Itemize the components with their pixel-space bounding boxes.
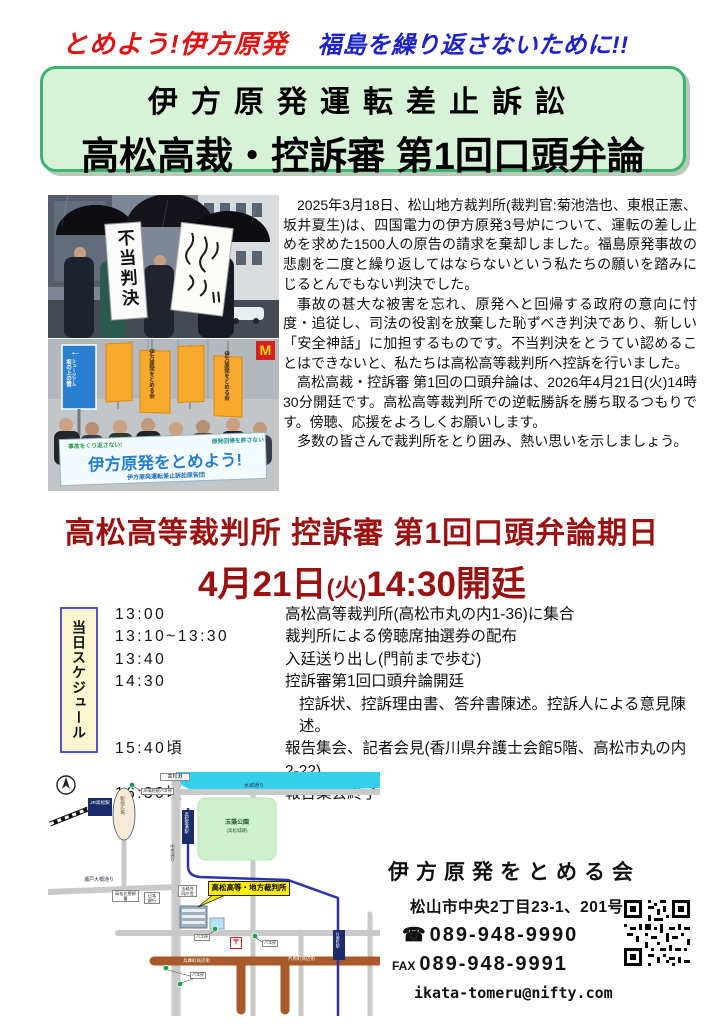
courthouse-building [180,906,207,928]
map-label-katahara-station: 片原町駅 [335,932,340,958]
map-label-seto-dori: 瀬戸大橋通り [84,877,114,883]
body-paragraph-2: 事故の甚大な被害を忘れ、原発へと回帰する政府の意向に忖度・追従し、司法の役割を放… [283,295,697,374]
map-label-hyogo-street: 兵庫町商店街 [183,958,210,963]
title-line1: 伊方原発運転差止訴訟 [43,77,683,121]
map-label-ekimae: 駅前広場 [120,796,126,832]
schedule-row: 13:00 高松高等裁判所(高松市丸の内1-36)に集合 [115,604,690,626]
schedule-label-box: 当日スケジュール [60,607,98,753]
organization-name: 伊方原発をとめる会 [388,856,714,886]
access-map: 高松港 水城通り 玉藻公園 (高松城跡) 高松築港駅 中央通り JR高松駅 駅前… [48,772,380,1016]
map-label-bus-stop-1: バス停 [194,934,210,941]
map-label-bus-stop-3: バス停 [190,972,206,979]
map-label-bus-stop-2: バス停 [262,940,278,947]
photo-column: 不当判決 [48,195,279,491]
body-paragraph-3: 高松高裁・控訴審 第1回の口頭弁論は、2026年4月21日(火)14時30分開廷… [283,373,697,432]
photo-unjust-ruling: 不当判決 [48,195,279,338]
flyer-page: とめよう!伊方原発福島を繰り返さないために!! 伊方原発運転差止訴訟 高松高裁・… [0,0,724,1024]
tagline-right: 福島を繰り返さないために!! [318,32,629,59]
photo-march: ← 坂の上の雲 ミュージアム 伊方原発をとめる会 伊方原発をとめる会 M 事故を… [48,339,279,491]
hearing-date-heading: 高松高等裁判所 控訴審 第1回口頭弁論期日 4月21日(火)14:30開廷 [0,508,724,607]
map-label-mizuki-dori: 水城通り [244,783,264,789]
compass-icon [57,776,75,794]
schedule-row: 13:10~13:30 裁判所による傍聴席抽選券の配布 [115,626,690,648]
schedule-row: 14:30 控訴審第1回口頭弁論開廷 [115,671,690,693]
hearing-heading-line1: 高松高等裁判所 控訴審 第1回口頭弁論期日 [0,508,724,552]
body-paragraph-1: 2025年3月18日、松山地方裁判所(裁判官:菊池浩也、東根正憲、坂井夏生)は、… [283,196,697,295]
map-label-chikko-station: 高松築港駅 [185,812,190,842]
tagline: とめよう!伊方原発福島を繰り返さないために!! [62,24,702,61]
post-office-mark: 〒 [230,937,242,949]
mcdonalds-sign: M [256,341,275,360]
photo-unjust-ruling-art [48,195,279,338]
body-text: 2025年3月18日、松山地方裁判所(裁判官:菊池浩也、東根正憲、坂井夏生)は、… [283,196,697,452]
hearing-heading-line2: 4月21日(火)14:30開廷 [0,556,724,607]
flag-text-1: 伊方原発をとめる会 [147,349,155,403]
map-label-jr-bus-stop: JR高松駅バス停 [141,788,174,795]
map-label-port: 高松港 [160,773,190,781]
schedule-row-note: 控訴状、控訴理由書、答弁書陳述。控訴人による意見陳述。 [115,694,690,739]
schedule-row: 13:40 入廷送り出し(門前まで歩む) [115,649,690,671]
flag-text-2: 伊方原発をとめる会 [222,351,230,405]
tagline-left: とめよう!伊方原発 [62,29,288,59]
qr-code [624,900,690,966]
map-label-legal-office: 法務合同庁舎 [178,885,197,897]
map-label-park: 玉藻公園 [206,820,268,827]
body-paragraph-4: 多数の皆さんで裁判所をとり囲み、熱い思いを示しましょう。 [283,432,697,452]
map-callout-courthouse: 高松高等・地方裁判所 [208,881,290,896]
email-address: ikata-tomeru@nifty.com [414,984,714,1002]
map-label-bank: 日本銀行 [144,892,160,904]
map-label-jr-station: JR高松駅 [88,800,112,806]
map-label-chuo-dori: 中央通り [170,844,175,870]
phone-number: 089-948-9990 [430,924,579,946]
fax-label: FAX [392,959,415,973]
fax-number: 089-948-9991 [419,953,568,975]
map-label-park-sub: (高松城跡) [206,828,268,833]
title-box: 伊方原発運転差止訴訟 高松高裁・控訴審 第1回口頭弁論 [40,66,686,172]
road-sign-arrow: ← [70,346,81,358]
contact-block: 伊方原発をとめる会 松山市中央2丁目23-1、201号 ☎089-948-999… [388,856,714,1002]
title-line2: 高松高裁・控訴審 第1回口頭弁論 [43,125,683,180]
map-label-katahara-street: 片原町商店街 [288,956,315,961]
map-label-police: 高松北警察署 [112,890,139,902]
road-sign-museum: 坂の上の雲 ミュージアム [65,359,76,407]
phone-icon: ☎ [402,925,426,946]
